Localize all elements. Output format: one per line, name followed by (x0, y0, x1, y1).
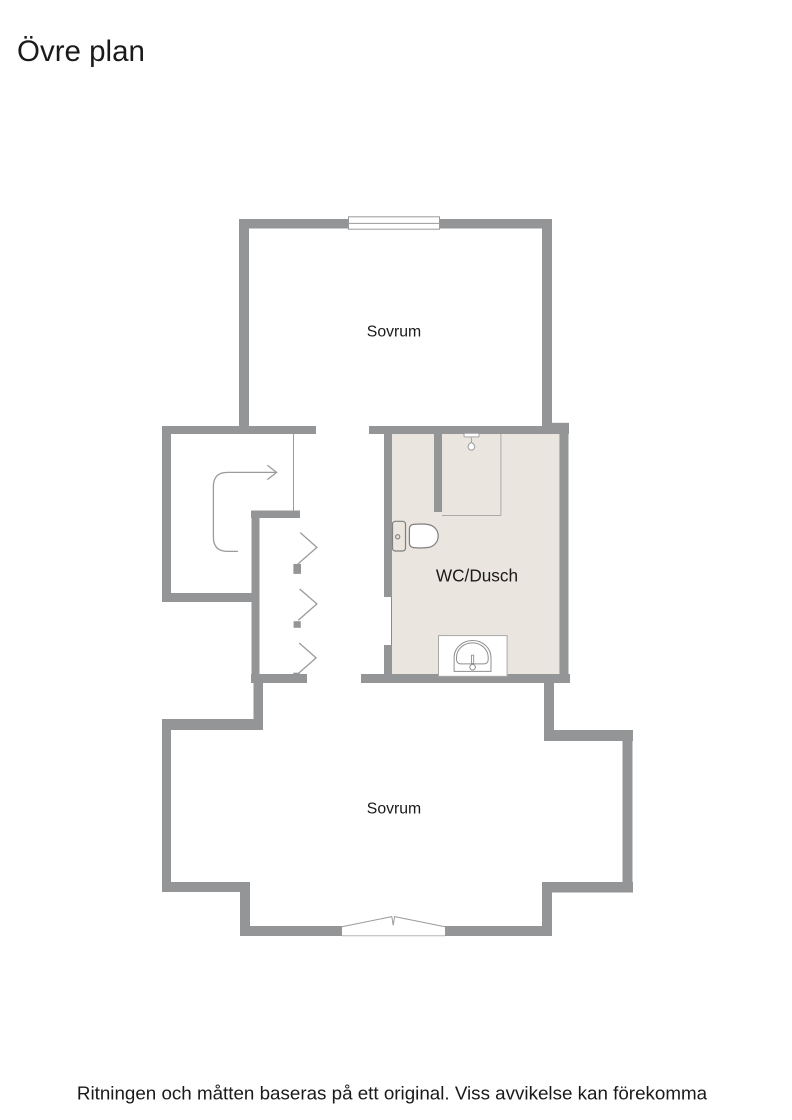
svg-text:Sovrum: Sovrum (367, 323, 421, 340)
svg-text:Sovrum: Sovrum (367, 801, 421, 818)
svg-text:WC/Dusch: WC/Dusch (436, 566, 518, 586)
svg-text:Ritningen och måtten baseras p: Ritningen och måtten baseras på ett orig… (77, 1083, 708, 1104)
svg-text:Övre plan: Övre plan (17, 35, 145, 68)
